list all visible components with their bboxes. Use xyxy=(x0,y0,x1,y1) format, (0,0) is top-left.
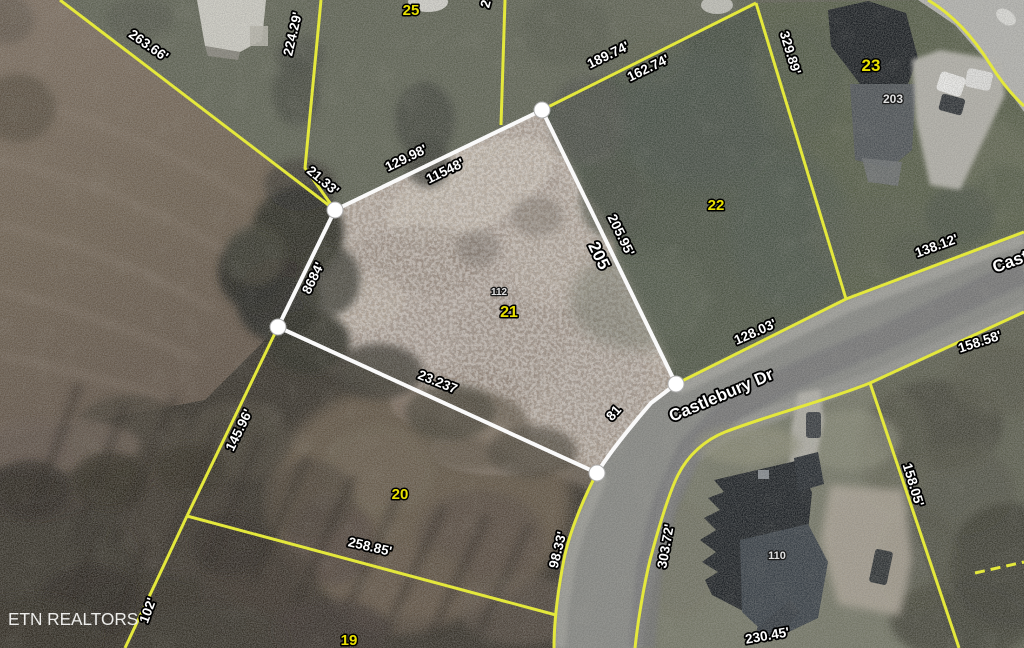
svg-text:21: 21 xyxy=(500,304,518,321)
svg-text:110: 110 xyxy=(768,550,786,562)
svg-text:ETN REALTORS: ETN REALTORS xyxy=(8,609,138,629)
svg-text:203: 203 xyxy=(883,92,903,106)
svg-text:19: 19 xyxy=(341,632,358,648)
svg-text:25: 25 xyxy=(403,2,420,19)
svg-text:22: 22 xyxy=(708,197,725,214)
svg-text:112: 112 xyxy=(491,287,508,298)
svg-text:20: 20 xyxy=(392,486,409,503)
svg-text:23: 23 xyxy=(862,56,881,75)
